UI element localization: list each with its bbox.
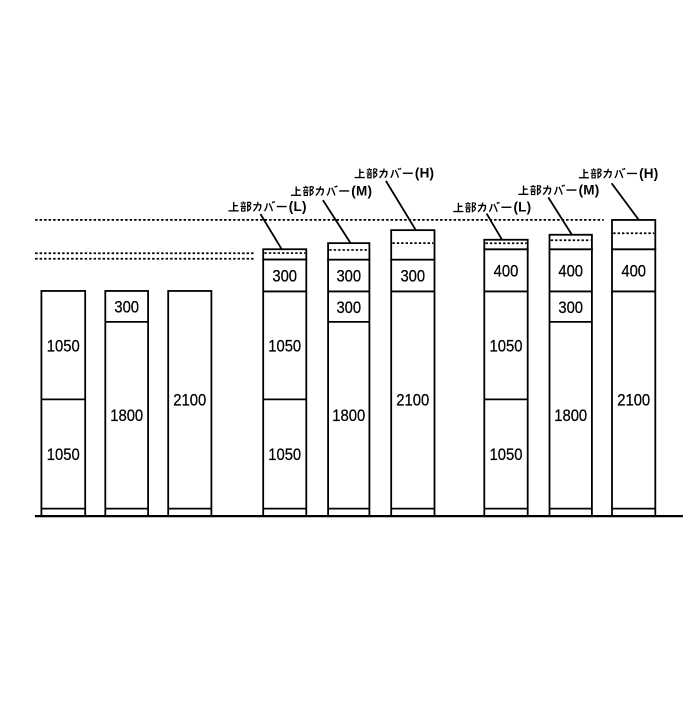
svg-text:300: 300 bbox=[400, 267, 425, 286]
svg-text:(M): (M) bbox=[579, 183, 600, 198]
svg-text:(L): (L) bbox=[514, 200, 532, 215]
svg-text:300: 300 bbox=[114, 298, 139, 317]
svg-text:(H): (H) bbox=[639, 166, 658, 181]
svg-text:(H): (H) bbox=[415, 166, 434, 181]
svg-text:1800: 1800 bbox=[332, 406, 365, 425]
svg-text:1800: 1800 bbox=[554, 406, 587, 425]
svg-text:400: 400 bbox=[621, 262, 646, 281]
svg-text:1050: 1050 bbox=[47, 336, 80, 355]
svg-text:300: 300 bbox=[558, 298, 583, 317]
svg-text:2100: 2100 bbox=[617, 390, 650, 409]
svg-text:1050: 1050 bbox=[490, 336, 523, 355]
svg-text:300: 300 bbox=[272, 267, 297, 286]
svg-text:300: 300 bbox=[336, 267, 361, 286]
svg-text:1050: 1050 bbox=[268, 336, 301, 355]
svg-text:400: 400 bbox=[558, 262, 583, 281]
svg-text:1800: 1800 bbox=[110, 406, 143, 425]
svg-text:(L): (L) bbox=[289, 199, 307, 214]
svg-text:1050: 1050 bbox=[47, 445, 80, 464]
svg-text:1050: 1050 bbox=[490, 445, 523, 464]
svg-text:300: 300 bbox=[336, 298, 361, 317]
svg-text:2100: 2100 bbox=[396, 390, 429, 409]
svg-text:(M): (M) bbox=[351, 183, 372, 198]
svg-text:2100: 2100 bbox=[173, 390, 206, 409]
svg-text:1050: 1050 bbox=[268, 445, 301, 464]
svg-text:400: 400 bbox=[494, 262, 519, 281]
